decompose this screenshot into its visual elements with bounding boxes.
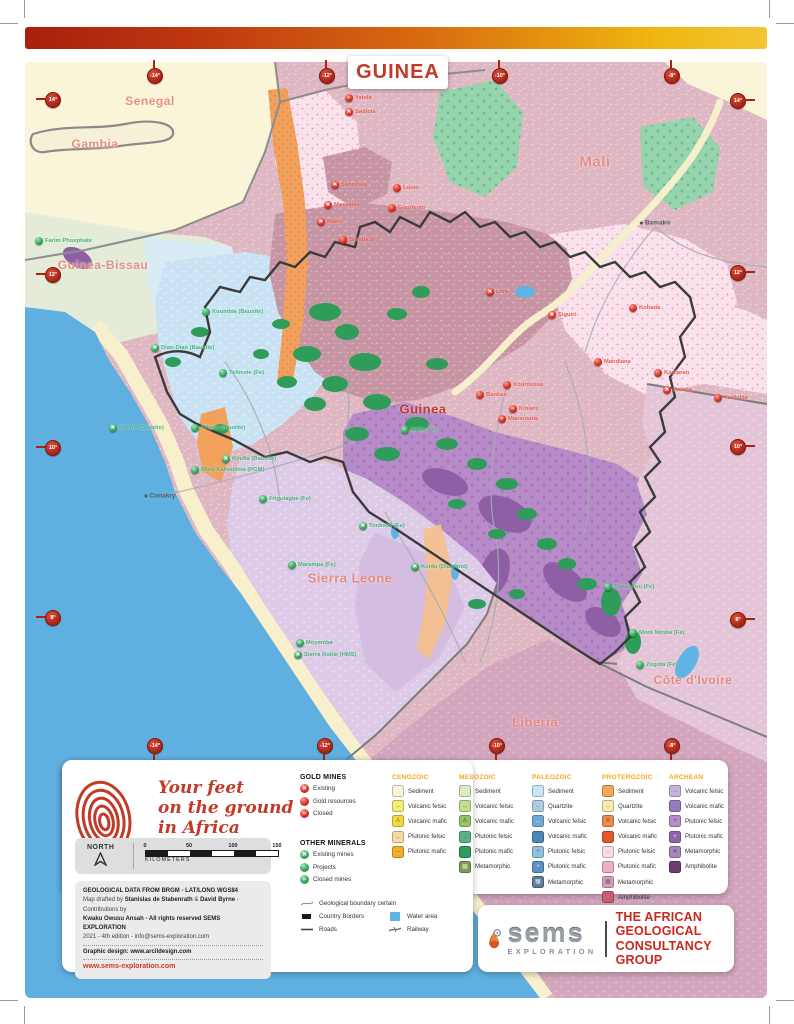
era-swatch: ✕ [602, 815, 614, 827]
border-icon [300, 912, 314, 921]
era-item-label: Metamorphic [685, 848, 720, 855]
era-item-label: Plutonic felsic [408, 833, 445, 840]
era-item: ▦Metamorphic [602, 876, 668, 888]
era-swatch [602, 891, 614, 903]
era-item-label: Sediment [408, 788, 434, 795]
era-title: CENOZOIC [392, 774, 458, 781]
map-poster-page: { "header": { "title": "GUINEA" }, "colo… [0, 0, 794, 1024]
era-item: ‥Volcanic felsic [532, 815, 598, 827]
era-swatch: ‥ [602, 800, 614, 812]
era-item-label: Plutonic felsic [548, 848, 585, 855]
era-item-label: Volcanic mafic [618, 833, 657, 840]
era-item-label: Plutonic mafic [475, 848, 513, 855]
era-item-label: Metamorphic [475, 863, 510, 870]
era-item: +Plutonic mafic [669, 831, 735, 843]
era-swatch [532, 785, 544, 797]
road-icon [300, 925, 314, 934]
era-item: Volcanic mafic [602, 831, 668, 843]
era-column: MESOZOICSediment‥Volcanic felsicAVolcani… [459, 774, 525, 876]
sems-logo-block: sems EXPLORATION THE AFRICAN GEOLOGICAL … [478, 905, 734, 972]
era-column: ARCHEAN‥Volcanic felsicVolcanic mafic+Pl… [669, 774, 735, 876]
symbol-legend-item: Railway [388, 925, 429, 934]
credits-rights: Kwaku Owusu Ansah - All rights reserved … [83, 915, 263, 934]
era-swatch [602, 831, 614, 843]
era-swatch [392, 785, 404, 797]
era-item-label: Volcanic felsic [685, 788, 723, 795]
era-swatch [602, 785, 614, 797]
boundary-icon [300, 899, 314, 908]
crop-mark [0, 23, 18, 24]
railway-icon [388, 925, 402, 934]
era-swatch: ‥ [459, 800, 471, 812]
water-icon [388, 912, 402, 921]
era-item: AVolcanic mafic [459, 815, 525, 827]
era-swatch: ‥ [532, 815, 544, 827]
era-item-label: Metamorphic [548, 879, 583, 886]
crop-mark [769, 1006, 770, 1024]
era-item: Amphibolite [602, 891, 668, 903]
era-item-label: Plutonic felsic [685, 818, 722, 825]
era-item-label: Plutonic mafic [685, 833, 723, 840]
era-swatch: ▦ [602, 876, 614, 888]
credits-edition: 2021 - 4th edition - info@sems-explorati… [83, 933, 263, 942]
era-item: ‥Quartzite [602, 800, 668, 812]
era-item: Plutonic mafic [602, 861, 668, 873]
sems-tagline-1: THE AFRICAN GEOLOGICAL [616, 910, 724, 939]
era-swatch [532, 831, 544, 843]
era-item: ✕Volcanic felsic [602, 815, 668, 827]
era-swatch [602, 861, 614, 873]
crop-mark [776, 23, 794, 24]
era-swatch [459, 846, 471, 858]
credits-drafted: Map drafted by Stanislas de Stabenrath &… [83, 896, 263, 915]
sems-sub: EXPLORATION [508, 947, 597, 956]
era-swatch: ‥ [392, 831, 404, 843]
era-column: PALEOZOICSediment‥Quartzite‥Volcanic fel… [532, 774, 598, 891]
era-item-label: Amphibolite [685, 863, 717, 870]
sems-tagline-2: CONSULTANCY GROUP [616, 939, 724, 968]
era-item-label: Quartzite [548, 803, 573, 810]
era-title: PROTEROZOIC [602, 774, 668, 781]
era-item: Volcanic mafic [669, 800, 735, 812]
era-item-label: Volcanic mafic [475, 818, 514, 825]
era-title: ARCHEAN [669, 774, 735, 781]
symbol-legend-item: Geological boundary certain [300, 899, 396, 908]
era-item: ‥Plutonic felsic [602, 846, 668, 858]
era-swatch: ‥ [392, 800, 404, 812]
era-item: +Plutonic felsic [532, 846, 598, 858]
era-swatch: – [392, 846, 404, 858]
era-item-label: Volcanic felsic [548, 818, 586, 825]
map-title: GUINEA [348, 56, 448, 89]
era-swatch: ▦ [459, 861, 471, 873]
era-item-label: Metamorphic [618, 879, 653, 886]
era-item-label: Sediment [548, 788, 574, 795]
era-swatch: ‥ [669, 785, 681, 797]
era-item-label: Volcanic felsic [618, 818, 656, 825]
era-item: +Plutonic felsic [669, 815, 735, 827]
symbol-label: Country Borders [319, 913, 364, 920]
era-item: ‥Volcanic felsic [669, 785, 735, 797]
era-item: ▦Metamorphic [532, 876, 598, 888]
era-swatch [669, 861, 681, 873]
era-item: ‥Quartzite [532, 800, 598, 812]
era-item: ✕Metamorphic [669, 846, 735, 858]
symbol-label: Roads [319, 926, 337, 933]
era-swatch: + [669, 831, 681, 843]
era-item-label: Quartzite [618, 803, 643, 810]
symbol-label: Water area [407, 913, 437, 920]
era-column: PROTEROZOICSediment‥Quartzite✕Volcanic f… [602, 774, 668, 907]
era-item-label: Plutonic felsic [618, 848, 655, 855]
era-item: AVolcanic mafic [392, 815, 458, 827]
era-item: –Plutonic mafic [392, 846, 458, 858]
era-column: CENOZOICSediment‥Volcanic felsicAVolcani… [392, 774, 458, 861]
era-item-label: Volcanic mafic [548, 833, 587, 840]
era-item: Volcanic mafic [532, 831, 598, 843]
era-item-label: Plutonic mafic [618, 863, 656, 870]
era-item-label: Volcanic felsic [408, 803, 446, 810]
symbol-legend-item: Roads [300, 925, 337, 934]
crop-mark [24, 0, 25, 18]
era-item: +Plutonic mafic [532, 861, 598, 873]
era-item-label: Volcanic mafic [685, 803, 724, 810]
era-swatch: ✕ [669, 846, 681, 858]
sems-brand: sems [508, 921, 597, 945]
era-item: Amphibolite [669, 861, 735, 873]
symbol-label: Geological boundary certain [319, 900, 396, 907]
era-item: Sediment [392, 785, 458, 797]
crop-mark [24, 1006, 25, 1024]
era-title: PALEOZOIC [532, 774, 598, 781]
era-item: ▦Metamorphic [459, 861, 525, 873]
era-item: Plutonic mafic [459, 846, 525, 858]
era-swatch: A [392, 815, 404, 827]
era-swatch: A [459, 815, 471, 827]
era-item: ‥Plutonic felsic [392, 831, 458, 843]
era-swatch [669, 800, 681, 812]
era-item-label: Plutonic mafic [408, 848, 446, 855]
era-swatch: ‥ [602, 846, 614, 858]
symbol-legend-item: Water area [388, 912, 437, 921]
credits-box: GEOLOGICAL DATA FROM BRGM - LAT/LONG WGS… [75, 881, 271, 979]
era-title: MESOZOIC [459, 774, 525, 781]
era-item: ‥Plutonic felsic [459, 831, 525, 843]
crop-mark [769, 0, 770, 18]
crop-mark [776, 1000, 794, 1001]
era-item: Sediment [602, 785, 668, 797]
symbol-legend-item: Country Borders [300, 912, 364, 921]
era-item-label: Volcanic felsic [475, 803, 513, 810]
era-swatch: + [532, 846, 544, 858]
era-item: ‥Volcanic felsic [392, 800, 458, 812]
era-swatch [459, 785, 471, 797]
era-item-label: Plutonic felsic [475, 833, 512, 840]
sems-divider [605, 921, 606, 957]
era-item: ‥Volcanic felsic [459, 800, 525, 812]
era-swatch: ‥ [532, 800, 544, 812]
era-swatch: ▦ [532, 876, 544, 888]
top-gradient-bar [25, 27, 767, 49]
symbol-label: Railway [407, 926, 429, 933]
credits-design: Graphic design: www.arcildesign.com [83, 948, 263, 957]
crop-mark [0, 1000, 18, 1001]
website-url: www.sems-exploration.com [83, 962, 263, 973]
era-item-label: Sediment [475, 788, 501, 795]
era-item: Sediment [532, 785, 598, 797]
sems-drop-icon [488, 922, 502, 956]
era-item-label: Sediment [618, 788, 644, 795]
era-item-label: Plutonic mafic [548, 863, 586, 870]
era-item: Sediment [459, 785, 525, 797]
era-item-label: Volcanic mafic [408, 818, 447, 825]
era-swatch: + [669, 815, 681, 827]
era-swatch: + [532, 861, 544, 873]
era-item-label: Amphibolite [618, 894, 650, 901]
era-legend: CENOZOICSediment‥Volcanic felsicAVolcani… [62, 774, 728, 894]
era-swatch: ‥ [459, 831, 471, 843]
